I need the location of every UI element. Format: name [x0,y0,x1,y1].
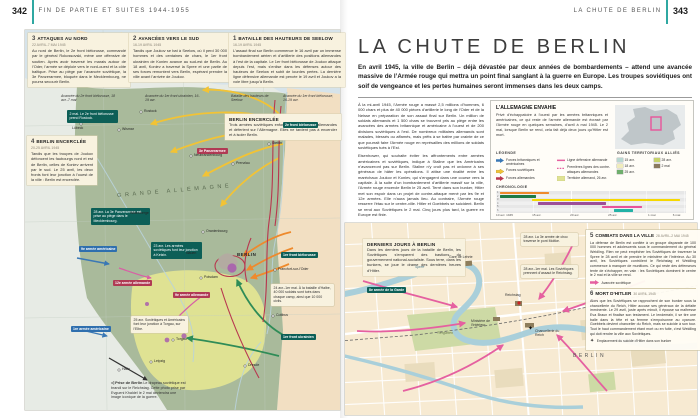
photo-caption-title: ◁ Prise de Berlin [111,380,142,385]
legend-label: Territoire allemand, 26 avr. [567,176,607,180]
axis-tick: 1 mai [648,213,656,217]
right-page-header: LA CHUTE DE BERLIN 343 [574,0,688,24]
gain-label: 28 avr. [662,158,672,162]
chronology-bar [538,202,606,204]
left-page-number: 342 [12,0,27,16]
gain-swatch [617,170,623,174]
section-text: Au nord de Berlin, le 2e front biéloruss… [32,48,126,84]
soviet-arrow-icon [496,169,504,174]
map-label: Tiergarten [437,331,453,335]
section-title: COMBATS DANS LA VILLE [595,233,654,238]
soviet-advance-icon [590,280,599,285]
section-dates: 16-19 AVRIL 1945 [233,43,341,47]
left-page-header: 342 FIN DE PARTIE ET SUITES 1944-1955 [12,0,190,24]
city-label: Leipzig [154,359,165,363]
box-text: Dans les derniers jours de la bataille d… [367,247,461,273]
chronology-title: CHRONOLOGIE [496,185,528,189]
page-title: LA CHUTE DE BERLIN [358,36,630,59]
legend-column-forces: Forces britanniques et américaines Force… [496,158,554,183]
left-page-title: FIN DE PARTIE ET SUITES 1944-1955 [39,0,191,14]
map-key-row: Avancée soviétique [590,280,696,285]
legend-item: Ligne défensive allemande [557,158,613,163]
chronology-bar [500,195,536,197]
chronology-bar [614,209,633,211]
city-label: Oranienbourg [206,229,227,233]
city-label: Stettin [272,141,282,145]
city-label: Halle [122,367,130,371]
city-label: Wittenberge [130,211,149,215]
legend-item: Territoire allemand, 26 avr. [557,176,613,181]
city-label: Rostock [144,109,157,113]
section-title: BATAILLE DES HAUTEURS DE SEELOW [238,36,333,41]
right-page-number: 343 [673,0,688,16]
gain-swatch [617,158,623,162]
arrow-key-label: Bataille des hauteurs de Seelow [231,94,275,103]
chronology-row-number: 6 [497,209,498,212]
section-number: 4 [31,139,34,145]
map-section-5: 5 COMBATS DANS LA VILLE 28 AVRIL-2 MAI 1… [590,233,696,285]
legend-label: Ligne défensive allemande [567,158,607,162]
section-title: AVANCÉES VERS LE SUD [138,36,199,41]
city-label: Lübeck [72,126,83,130]
unit-label: 9e armée allemande [173,292,210,298]
section-number: 6 [590,291,593,297]
section-number: 3 [32,36,35,42]
map-label: Gare de Lehrte [449,255,473,259]
gain-item: 18 avr. [617,164,650,168]
intro-paragraph: En avril 1945, la ville de Berlin – déjà… [358,63,692,91]
gain-label: 2 mai [662,164,670,168]
legend-title: LÉGENDE [496,151,516,155]
map-callout: 2 mai. Le 2e front biélorusse prend Rost… [67,110,118,123]
legend-label: Premières lignes des contre-attaques all… [567,165,613,173]
map-section-2: 2 AVANCÉES VERS LE SUD 16-19 AVRIL 1945 … [129,33,231,82]
gains-title: GAINS TERRITORIAUX ALLIÉS [617,151,680,155]
unit-label: 1er front biélorusse [281,252,318,258]
section-text: Tandis que les troupes de Joukov défonce… [31,151,93,182]
berlin-map-panel: 5 COMBATS DANS LA VILLE 28 AVRIL-2 MAI 1… [586,230,700,350]
defence-line-icon [557,158,565,163]
map-callout: 28 avr.-1er mai. Les Soviétiques prennen… [521,265,578,278]
legend-label: Forces britanniques et américaines [506,158,554,166]
body-paragraph: À la mi-avril 1945, l’Armée rouge a mass… [358,102,484,150]
gain-label: 15 avr. [625,158,635,162]
map-section-4: 4 BERLIN ENCERCLÉE 20-25 AVRIL 1945 Tand… [27,136,97,185]
section-dates: 22 AVRIL-7 MAI 1945 [32,43,126,47]
section-dates: 16-19 AVRIL 1945 [133,43,227,47]
gain-item: 25 avr. [617,170,650,174]
section-text: La défense de Berlin est confiée à un gr… [590,241,696,278]
panel-divider [590,288,696,289]
gain-item: 2 mai [654,164,687,168]
gain-swatch [617,164,623,168]
section-title: MORT D’HITLER [595,291,631,296]
city-label: Cottbus [276,313,288,317]
section-title: ATTAQUES AU NORD [37,36,87,41]
chronology-axis: 10 avr. 1945 15 avr. 20 avr. 25 avr. 1 m… [496,213,686,219]
axis-tick: 15 avr. [532,213,541,217]
german-arrow-icon [496,176,504,181]
city-label: Potsdam [204,275,218,279]
gain-item: 15 avr. [617,158,650,162]
bunker-marker-icon: ✦ [590,339,594,344]
axis-tick: 25 avr. [608,213,617,217]
legend-item: Forces allemandes [496,176,554,181]
territorial-gains-legend: 15 avr. 28 avr. 18 avr. 2 mai 25 avr. [617,158,687,174]
unit-label: 9e armée américaine [79,246,117,252]
axis-tick: 20 avr. [570,213,579,217]
section-text: L’assaut final sur Berlin commence le 16… [233,48,341,84]
unit-label: 2e front biélorusse [283,122,318,128]
gain-swatch [654,158,660,162]
section-text: Tandis que Joukov se bat à Seelow, où il… [133,48,227,79]
map-callout: 28 avr. La 3e armée de choc traverse le … [521,233,578,246]
divider-rule [358,97,692,98]
section-title: BERLIN ENCERCLÉE [36,139,86,144]
hitler-bunker-marker: ✦ [528,325,533,332]
body-paragraph: Eisenhower, qui souhaite éviter les affr… [358,153,484,217]
city-label: Neubrandenbourg [194,153,222,157]
section-number: 2 [133,36,136,42]
city-label: Nauen [186,251,196,255]
map-key-label: Emplacement du suicide d’Hitler dans son… [597,339,671,343]
legend-item: Forces soviétiques [496,168,554,173]
gain-label: 25 avr. [625,170,635,174]
berlin-label: BERLIN [237,252,256,257]
map-label: Spree [415,265,424,269]
unit-label: 1er front ukrainien [281,334,316,340]
axis-tick: 10 avr. 1945 [496,213,513,217]
sidebar-germany-invaded: L’ALLEMAGNE ENVAHIE Privé d’échappatoire… [490,100,694,220]
germany-map: 3 ATTAQUES AU NORD 22 AVRIL-7 MAI 1945 A… [25,30,340,410]
section-text: Alors que les Soviétiques se rapprochent… [590,299,696,336]
city-label: Francfort-sur-l’Oder [278,267,314,271]
section-number: 1 [233,36,236,42]
legend-label: Forces allemandes [506,176,535,180]
arrow-key-label: Avancée du 1er front biélorusse, 16-19 a… [283,94,335,103]
gain-swatch [654,164,660,168]
legend-item: Premières lignes des contre-attaques all… [557,165,613,173]
book-spread: { "header": { "left_page_number": "342",… [0,0,700,418]
berlin-city-label: BERLIN [573,353,606,359]
gain-label: 18 avr. [625,164,635,168]
arrow-key-label: Avancée du 1er front ukrainien, 16-19 av… [145,94,201,103]
city-label: Torgau [176,337,187,341]
map-section-3: 3 ATTAQUES AU NORD 22 AVRIL-7 MAI 1945 A… [28,33,130,87]
sidebar-title: L’ALLEMAGNE ENVAHIE [496,105,556,111]
header-divider [32,0,34,24]
right-page-running-title: LA CHUTE DE BERLIN [574,0,662,14]
europe-locator-map [615,105,685,149]
map-key-label: Avancée soviétique [602,281,631,285]
header-divider [666,0,668,24]
counterattack-line-icon [557,166,565,171]
unit-label: 1re armée américaine [71,326,111,332]
legend-label: Forces soviétiques [506,168,534,172]
sidebar-text: Privé d’échappatoire à l’ouest par les a… [496,113,608,138]
chronology-bar [532,199,680,201]
axis-tick: 6 mai [673,213,681,217]
legend-item: Forces britanniques et américaines [496,158,554,166]
map-label: Chancellerie du Reich [535,329,567,337]
map-section-6: 6 MORT D’HITLER 30 AVRIL 1945 Alors que … [590,291,696,343]
german-territory-swatch [557,176,565,181]
gain-item: 28 avr. [654,158,687,162]
unit-label: 8e armée de la Garde [367,287,406,293]
section-number: 5 [590,233,593,239]
map-callout: 25 avr. Soviétiques et Américains font l… [131,316,188,333]
map-section-1: 1 BATAILLE DES HAUTEURS DE SEELOW 16-19 … [229,33,345,87]
body-column: À la mi-avril 1945, l’Armée rouge a mass… [358,102,484,221]
city-label: Prenzlau [236,161,250,165]
section-dates: 30 AVRIL 1945 [633,292,655,296]
reichstag-marker [517,301,520,304]
city-label: Wismar [122,127,134,131]
chronology-bar [602,206,642,208]
map-label: Ministère de l’Intérieur [471,319,499,327]
photo-caption: ◁ Prise de Berlin Le drapeau soviétique … [111,380,187,400]
map-key-row: ✦ Emplacement du suicide d’Hitler dans s… [590,339,696,344]
chronology-gantt: 123456 [496,191,686,213]
city-label: Dresde [248,363,259,367]
chronology-bar [500,192,549,194]
unit-label: 12e armée allemande [113,280,152,286]
map-label: Reichstag [505,293,521,297]
section-dates: 20-25 AVRIL 1945 [31,146,93,150]
arrow-key-label: Avancée du 2e front biélorusse, 18 avr.-… [61,94,117,103]
legend-column-lines: Ligne défensive allemande Premières lign… [557,158,613,183]
section-dates: 28 AVRIL-2 MAI 1945 [656,234,689,238]
allied-arrow-icon [496,158,504,163]
map-callout: 24 avr.-1er mai. À la bataille d’Halbe, … [271,284,334,306]
